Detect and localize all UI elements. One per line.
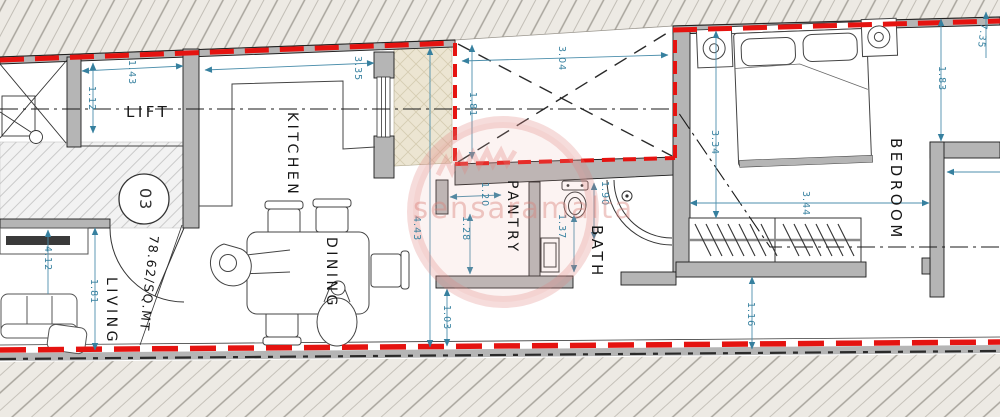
dim-living-depth: 1.81 — [89, 279, 99, 304]
watermark-text: sensaramalta — [413, 194, 634, 223]
room-label-dining: DINING — [324, 237, 338, 309]
floor-plan-canvas: LIFT KITCHEN DINING LIVING PANTRY BATH B… — [0, 0, 1000, 417]
dim-lift-depth: 1.12 — [87, 86, 97, 111]
room-label-kitchen: KITCHEN — [285, 112, 299, 197]
kitchen-window — [377, 77, 390, 137]
room-label-lift: LIFT — [126, 105, 170, 120]
room-label-bedroom: BEDROOM — [888, 138, 903, 241]
wardrobe — [689, 218, 861, 262]
dim-shaft-depth: 1.81 — [468, 92, 478, 117]
dim-wardrobe-clear: 1.16 — [746, 302, 756, 327]
dim-shaft-width: 3.04 — [557, 46, 567, 71]
dim-wardrobe-width: 3.44 — [801, 191, 811, 216]
dim-bedroom-offset: 1.83 — [937, 66, 947, 91]
unit-number-label: 03 — [137, 188, 153, 210]
room-label-living: LIVING — [104, 277, 118, 345]
dim-lift-width: 1.43 — [127, 60, 137, 85]
dim-bedroom-depth: 3.34 — [710, 130, 720, 155]
dim-bedroom-length: 7.35 — [976, 23, 988, 49]
dim-corridor: 1.03 — [442, 305, 452, 330]
stair-lines — [0, 60, 67, 144]
dim-kitchen-width: 3.35 — [353, 56, 363, 81]
dim-living-length: 4.12 — [43, 246, 53, 271]
room-label-bath: BATH — [589, 225, 604, 279]
bedroom-furniture — [696, 18, 901, 169]
furniture-dining — [210, 199, 409, 346]
